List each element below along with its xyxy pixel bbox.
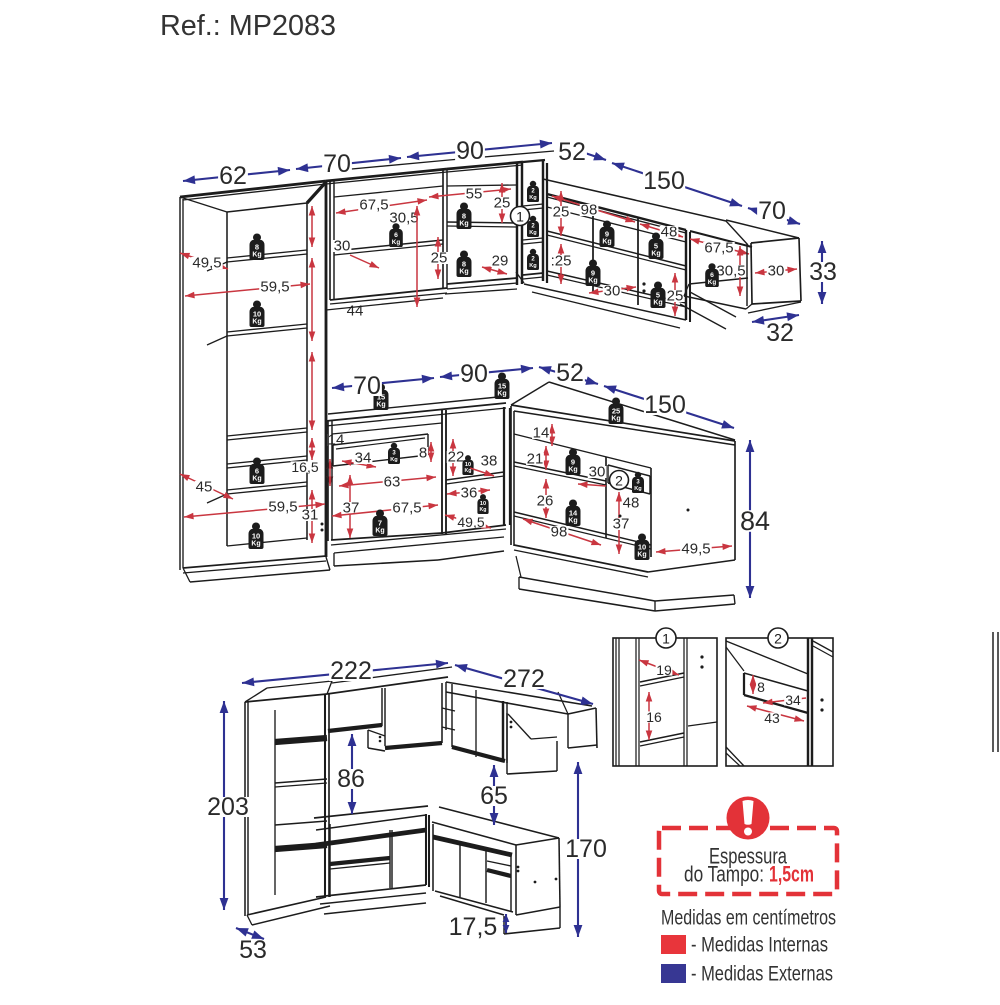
svg-text:17,5: 17,5 (449, 913, 498, 941)
svg-text:Kg: Kg (708, 279, 717, 286)
svg-text:62: 62 (219, 162, 247, 190)
svg-text:21: 21 (527, 451, 544, 468)
svg-text:70: 70 (758, 197, 786, 225)
svg-text:32: 32 (766, 319, 794, 347)
svg-text:272: 272 (503, 665, 545, 693)
svg-text:38: 38 (481, 453, 498, 470)
svg-text:- Medidas Externas: - Medidas Externas (691, 963, 833, 986)
svg-text:Kg: Kg (611, 416, 620, 423)
svg-text:8: 8 (462, 212, 466, 221)
svg-text:222: 222 (330, 657, 372, 685)
svg-text:Kg: Kg (252, 252, 261, 259)
svg-text:Kg: Kg (465, 468, 472, 474)
svg-text:25: 25 (667, 288, 684, 305)
svg-text:Kg: Kg (568, 518, 577, 525)
svg-text:Kg: Kg (529, 230, 537, 236)
svg-text:25: 25 (612, 407, 620, 416)
svg-text:1,5cm: 1,5cm (769, 862, 814, 887)
svg-text:30: 30 (334, 238, 351, 255)
svg-text:63: 63 (384, 474, 401, 491)
svg-text:Kg: Kg (602, 239, 611, 246)
svg-text:do Tampo:: do Tampo: (684, 862, 764, 887)
svg-text:98: 98 (551, 524, 568, 541)
svg-text:Kg: Kg (376, 402, 385, 409)
svg-text:48: 48 (661, 224, 678, 241)
svg-text:90: 90 (456, 137, 484, 165)
svg-text:9: 9 (571, 458, 575, 467)
svg-text:30: 30 (589, 464, 606, 481)
svg-text:86: 86 (337, 765, 365, 793)
svg-text:53: 53 (239, 936, 267, 964)
svg-text:14: 14 (569, 509, 578, 518)
svg-text:10: 10 (252, 532, 260, 541)
svg-text:15: 15 (498, 382, 506, 391)
svg-text:49,5: 49,5 (681, 541, 710, 558)
svg-text:5: 5 (656, 291, 660, 300)
svg-text:48: 48 (623, 495, 640, 512)
svg-text:7: 7 (378, 519, 382, 528)
svg-text:37: 37 (613, 516, 630, 533)
svg-text:5: 5 (654, 242, 658, 251)
svg-text:45: 45 (196, 479, 213, 496)
svg-text:67,5: 67,5 (359, 197, 388, 214)
svg-text:52: 52 (558, 138, 586, 166)
svg-text:10: 10 (638, 543, 646, 552)
svg-text:16,5: 16,5 (291, 459, 318, 475)
svg-text:16: 16 (646, 709, 662, 725)
svg-text:29: 29 (492, 253, 509, 270)
svg-text:49,5: 49,5 (192, 255, 221, 272)
svg-text:Kg: Kg (653, 300, 662, 307)
svg-text:Kg: Kg (252, 319, 261, 326)
svg-text:170: 170 (565, 835, 607, 863)
svg-text:Kg: Kg (637, 552, 646, 559)
svg-text:Kg: Kg (459, 221, 468, 228)
svg-text:Kg: Kg (651, 251, 660, 258)
svg-text:Medidas em centímetros: Medidas em centímetros (661, 907, 836, 930)
svg-text:44: 44 (347, 303, 364, 320)
svg-text:Kg: Kg (459, 269, 468, 276)
svg-text:1: 1 (516, 209, 524, 225)
svg-text:31: 31 (302, 507, 319, 524)
svg-text:8: 8 (419, 445, 427, 462)
svg-text:30,5: 30,5 (389, 210, 418, 227)
svg-text:33: 33 (809, 258, 837, 286)
svg-text:150: 150 (644, 391, 686, 419)
svg-text:70: 70 (323, 150, 351, 178)
svg-text:2: 2 (615, 473, 623, 489)
svg-text:Kg: Kg (375, 528, 384, 535)
svg-text:Kg: Kg (392, 239, 401, 246)
svg-text:30: 30 (768, 263, 785, 280)
svg-text:Kg: Kg (634, 486, 642, 492)
svg-text:43: 43 (764, 710, 780, 726)
svg-text:2: 2 (774, 631, 782, 647)
svg-text:6: 6 (255, 467, 259, 476)
svg-text:25: 25 (431, 250, 448, 267)
svg-text:25: 25 (494, 195, 511, 212)
svg-text:36: 36 (461, 485, 478, 502)
svg-text:9: 9 (591, 269, 595, 278)
svg-text:Kg: Kg (480, 507, 487, 513)
svg-text:52: 52 (556, 359, 584, 387)
svg-text:90: 90 (460, 360, 488, 388)
svg-text:49,5: 49,5 (457, 514, 484, 530)
svg-text:30,5: 30,5 (716, 263, 745, 280)
svg-text:8: 8 (255, 243, 259, 252)
svg-text:14: 14 (533, 425, 550, 442)
svg-text:Kg: Kg (252, 476, 261, 483)
svg-text:150: 150 (643, 167, 685, 195)
svg-text:Ref.: MP2083: Ref.: MP2083 (160, 10, 336, 42)
svg-text:Kg: Kg (529, 263, 537, 269)
svg-text:9: 9 (605, 230, 609, 239)
svg-text:26: 26 (537, 493, 554, 510)
svg-text:Kg: Kg (529, 195, 537, 201)
svg-text:67,5: 67,5 (704, 240, 733, 257)
svg-text:59,5: 59,5 (260, 279, 289, 296)
svg-text:Kg: Kg (497, 391, 506, 398)
svg-text:55: 55 (466, 186, 483, 203)
svg-text:6: 6 (394, 232, 398, 239)
svg-text:65: 65 (480, 782, 508, 810)
svg-text:Kg: Kg (568, 467, 577, 474)
svg-text:70: 70 (353, 372, 381, 400)
svg-text:Kg: Kg (390, 457, 398, 463)
svg-text:- Medidas Internas: - Medidas Internas (691, 934, 828, 957)
svg-text:Kg: Kg (251, 541, 260, 548)
svg-text:1: 1 (662, 631, 670, 647)
svg-text:22: 22 (448, 449, 465, 466)
svg-text:67,5: 67,5 (392, 500, 421, 517)
svg-text:34: 34 (785, 692, 801, 708)
svg-text:Kg: Kg (588, 278, 597, 285)
svg-text:6: 6 (710, 272, 714, 279)
svg-text:34: 34 (355, 450, 372, 467)
svg-text:8: 8 (462, 260, 466, 269)
svg-text:10: 10 (253, 310, 261, 319)
svg-text::25: :25 (551, 253, 572, 270)
svg-text:19: 19 (656, 662, 672, 678)
svg-text:59,5: 59,5 (268, 499, 297, 516)
svg-text:84: 84 (740, 506, 770, 536)
svg-text:203: 203 (207, 793, 249, 821)
svg-text:30: 30 (604, 283, 621, 300)
svg-text:25: 25 (553, 204, 570, 221)
svg-text:98: 98 (581, 202, 598, 219)
svg-text:8: 8 (757, 679, 765, 695)
